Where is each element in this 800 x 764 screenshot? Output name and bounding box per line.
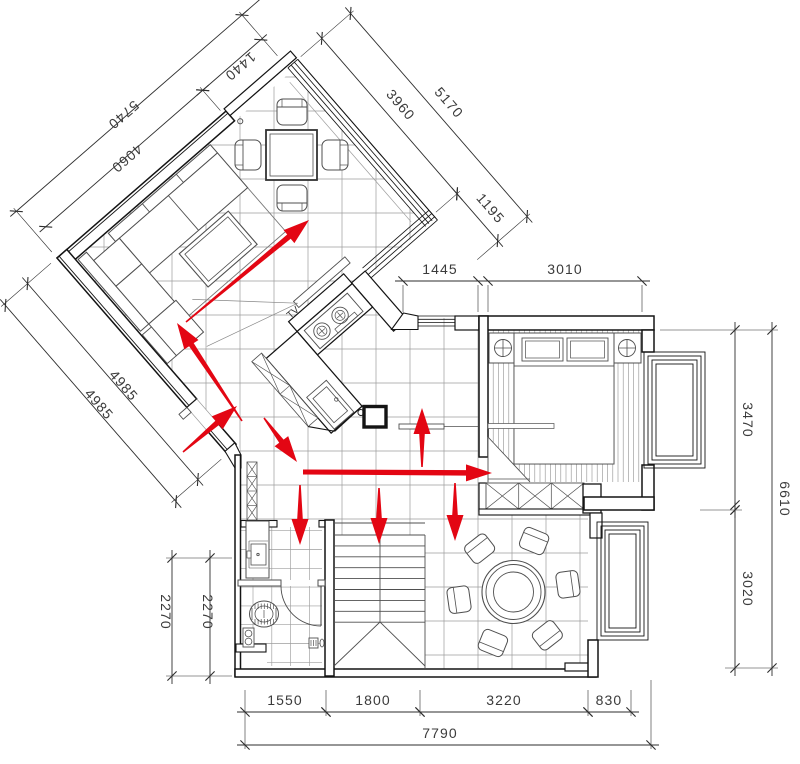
svg-text:3020: 3020 xyxy=(740,571,756,607)
svg-text:1445: 1445 xyxy=(422,261,458,277)
svg-text:7790: 7790 xyxy=(422,725,458,741)
svg-text:1550: 1550 xyxy=(267,692,303,708)
svg-text:3010: 3010 xyxy=(547,261,583,277)
svg-text:3220: 3220 xyxy=(486,692,522,708)
svg-text:2270: 2270 xyxy=(200,594,216,630)
svg-text:3470: 3470 xyxy=(740,402,756,438)
svg-text:6610: 6610 xyxy=(777,481,793,517)
svg-text:830: 830 xyxy=(596,692,623,708)
svg-text:1800: 1800 xyxy=(355,692,391,708)
svg-text:2270: 2270 xyxy=(158,594,174,630)
